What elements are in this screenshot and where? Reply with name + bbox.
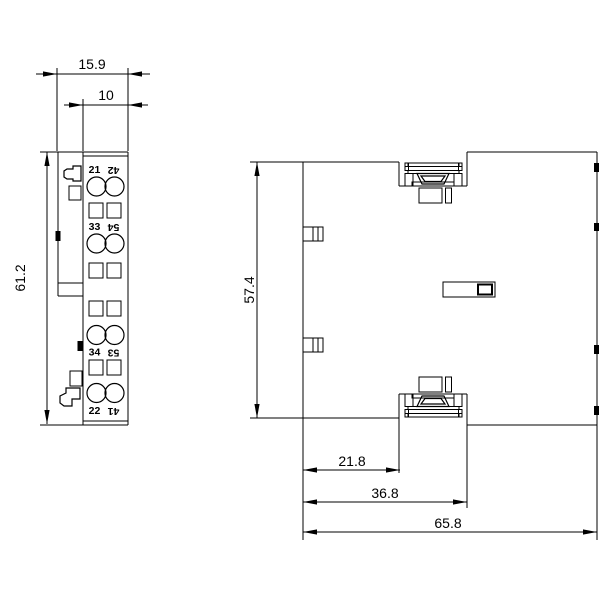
- bottom-clip-icon: [60, 388, 80, 406]
- terminal-label-53: 53: [108, 347, 120, 359]
- terminal-labels: 21 42 33 54 34 53 22 41: [89, 164, 120, 417]
- terminal-openings: [87, 177, 124, 403]
- terminal-label-42: 42: [108, 164, 120, 176]
- mounting-clip-details: [56, 166, 83, 406]
- spring-terminal-top: [405, 163, 462, 203]
- dim-foot-offset: 21.8: [338, 453, 365, 469]
- terminal-label-22: 22: [89, 405, 101, 417]
- terminal-label-34: 34: [89, 347, 101, 359]
- front-view: 21 42 33 54 34 53 22 41: [12, 56, 150, 425]
- drawing-svg: 21 42 33 54 34 53 22 41: [0, 0, 600, 600]
- dim-front-height: 61.2: [12, 264, 28, 291]
- terminal-label-54: 54: [108, 221, 120, 233]
- top-clip-icon: [64, 166, 81, 181]
- dim-total-width: 15.9: [78, 56, 105, 72]
- dimension-drawing: 21 42 33 54 34 53 22 41: [0, 0, 600, 600]
- actuator-slot: [443, 282, 495, 297]
- dimension-arrows-side: [254, 162, 597, 535]
- side-view-outline: [250, 152, 597, 473]
- side-view: 57.4 21.8 36.8 65.8: [241, 152, 599, 540]
- terminal-label-21: 21: [89, 164, 101, 176]
- dim-foot-depth: 36.8: [371, 485, 398, 501]
- dim-terminal-width: 10: [98, 87, 114, 103]
- dim-side-height: 57.4: [241, 276, 257, 303]
- terminal-label-33: 33: [89, 221, 101, 233]
- side-snap-tabs: [303, 227, 323, 352]
- side-view-dimensions: 57.4 21.8 36.8 65.8: [241, 162, 597, 540]
- terminal-label-41: 41: [108, 405, 120, 417]
- front-view-dimensions: 15.9 10 61.2: [12, 56, 150, 424]
- spring-terminal-bottom: [405, 377, 462, 417]
- dim-total-depth: 65.8: [434, 515, 461, 531]
